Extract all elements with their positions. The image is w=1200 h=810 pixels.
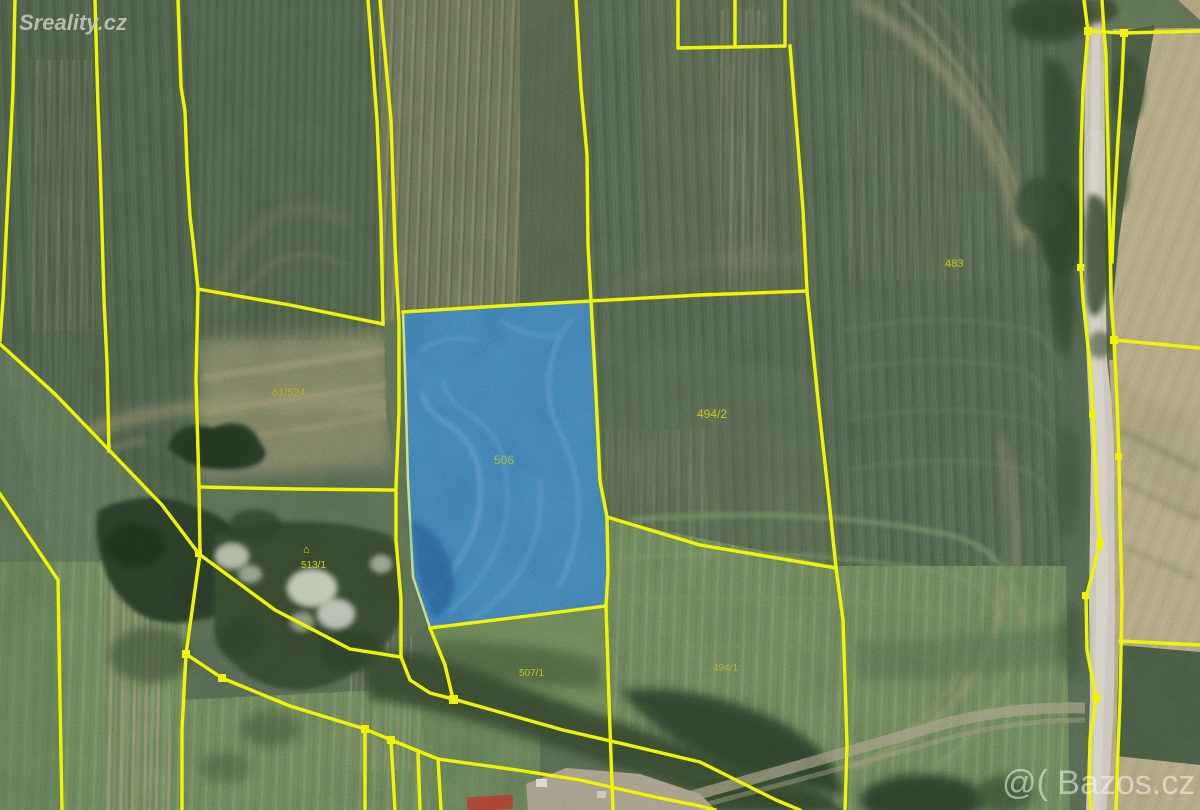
svg-text:@( Bazos.cz: @( Bazos.cz	[1002, 764, 1195, 802]
svg-text:Sreality.cz: Sreality.cz	[19, 10, 127, 35]
